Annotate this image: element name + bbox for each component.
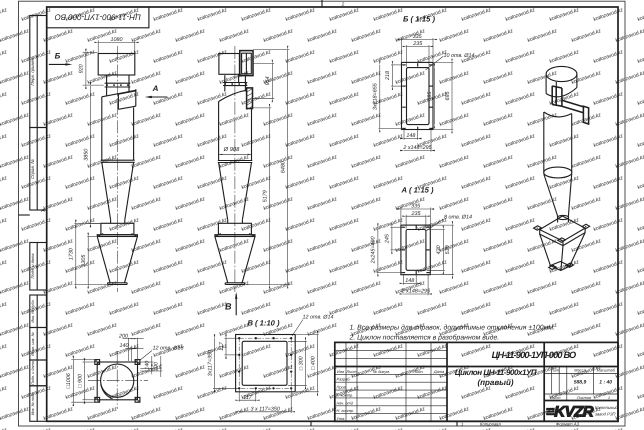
svg-text:Лист: Лист [345,369,357,374]
svg-text:завод РЗП: завод РЗП [594,412,616,417]
svg-text:№ докум.: № докум. [373,369,390,374]
svg-text:200: 200 [154,362,160,372]
svg-text:Лит.: Лит. [550,368,560,373]
svg-text:Н. контр.: Н. контр. [337,408,355,413]
svg-text:200: 200 [118,333,128,339]
svg-text:2: 2 [341,2,345,7]
svg-text:117: 117 [219,341,225,351]
svg-text:1 : 40: 1 : 40 [599,380,612,386]
svg-text:430: 430 [436,245,442,254]
svg-text:Инв. № подл.: Инв. № подл. [31,392,35,416]
svg-text:3 х 117=350: 3 х 117=350 [250,407,279,413]
svg-text:Б ( 1:15 ): Б ( 1:15 ) [403,15,435,24]
svg-text:Пров.: Пров. [337,385,347,390]
svg-text:Взам. инв. №: Взам. инв. № [31,332,35,355]
svg-text:Перв. примен.: Перв. примен. [30,56,35,85]
svg-text:□ 300: □ 300 [298,356,304,370]
svg-text:ЦН-11-900-1УП-000 ВО: ЦН-11-900-1УП-000 ВО [55,12,141,21]
svg-text:218: 218 [385,71,391,81]
svg-text:Утв.: Утв. [337,416,346,421]
svg-text:1. Все размеры для справок, до: 1. Все размеры для справок, допустимые о… [350,325,556,332]
svg-text:Масса: Масса [574,368,586,373]
svg-text:12 отв. Ø14: 12 отв. Ø14 [303,315,334,321]
svg-text:3х117=350: 3х117=350 [207,350,213,376]
svg-text:1: 1 [461,421,463,426]
svg-text:Листов: Листов [576,395,591,400]
svg-text:530: 530 [445,245,451,254]
svg-text:117: 117 [243,395,253,401]
svg-text:12 отв. Ø18: 12 отв. Ø18 [153,346,184,352]
svg-text:595: 595 [427,91,433,101]
svg-text:3х218=655: 3х218=655 [373,82,379,110]
svg-text:Циклон ЦН-11-900х1УП: Циклон ЦН-11-900х1УП [455,368,537,377]
svg-text:2. Циклон поставляется в разоб: 2. Циклон поставляется в разобранном вид… [349,334,500,342]
svg-text:588,9: 588,9 [574,380,587,386]
svg-text:А ( 1:15 ): А ( 1:15 ) [400,186,434,195]
svg-text:Разраб.: Разраб. [337,377,351,382]
svg-text:А: А [40,208,45,214]
svg-text:□1006: □1006 [66,373,72,388]
svg-text:Т. контр.: Т. контр. [337,392,354,397]
svg-text:□ 900: □ 900 [77,374,83,388]
svg-text:8 отв. Ø14: 8 отв. Ø14 [444,215,472,221]
svg-text:2 х148=295: 2 х148=295 [401,289,431,295]
svg-text:2 х148=295: 2 х148=295 [402,145,432,151]
svg-text:Изм: Изм [337,369,345,374]
svg-text:(правый): (правый) [477,378,513,387]
svg-text:954: 954 [265,76,271,85]
svg-text:3850: 3850 [83,149,89,161]
svg-text:148: 148 [406,133,415,139]
svg-text:Ø 908: Ø 908 [223,146,241,153]
svg-text:ЦН-11-900-1УП-000 ВО: ЦН-11-900-1УП-000 ВО [492,350,576,360]
svg-text:920: 920 [79,64,85,73]
svg-text:148: 148 [405,278,414,284]
svg-text:Подп. и дата: Подп. и дата [30,253,35,279]
svg-text:Нач. отд: Нач. отд [337,400,354,405]
svg-text:Копировал: Копировал [480,421,501,426]
svg-text:335: 335 [411,204,421,210]
svg-text:В ( 1:10 ): В ( 1:10 ) [247,319,280,328]
svg-text:Формат А3: Формат А3 [556,421,580,426]
svg-text:335: 335 [413,34,423,40]
svg-text:Лист: Лист [549,395,561,400]
svg-text:235: 235 [411,211,422,217]
svg-text:Справ. №: Справ. № [30,159,35,179]
svg-text:140: 140 [120,343,129,349]
svg-text:10 отв. Ø14: 10 отв. Ø14 [444,53,475,59]
svg-text:Масштаб: Масштаб [597,368,616,373]
svg-text:6480: 6480 [281,161,287,173]
svg-text:695: 695 [445,91,451,101]
svg-text:А: А [152,84,159,93]
svg-text:Б: Б [55,52,61,61]
svg-text:Инв. № дубл.: Инв. № дубл. [31,299,35,322]
svg-text:1080: 1080 [111,37,123,43]
svg-text:1305: 1305 [81,254,87,267]
svg-text:140: 140 [145,361,151,370]
svg-text:Подп.: Подп. [413,369,423,374]
svg-text:Подп. и дата: Подп. и дата [31,361,35,385]
svg-text:Дата: Дата [433,369,445,374]
svg-text:□ 400: □ 400 [310,356,316,370]
svg-text:В: В [225,302,232,312]
svg-text:1: 1 [608,395,610,400]
svg-text:5179: 5179 [262,190,268,202]
svg-text:235: 235 [412,41,423,47]
svg-text:1730: 1730 [69,248,75,260]
svg-text:Котельный: Котельный [595,405,618,410]
svg-text:≡KVZR: ≡KVZR [546,404,594,421]
svg-text:2х245=490: 2х245=490 [371,236,377,264]
svg-text:245: 245 [385,233,391,244]
